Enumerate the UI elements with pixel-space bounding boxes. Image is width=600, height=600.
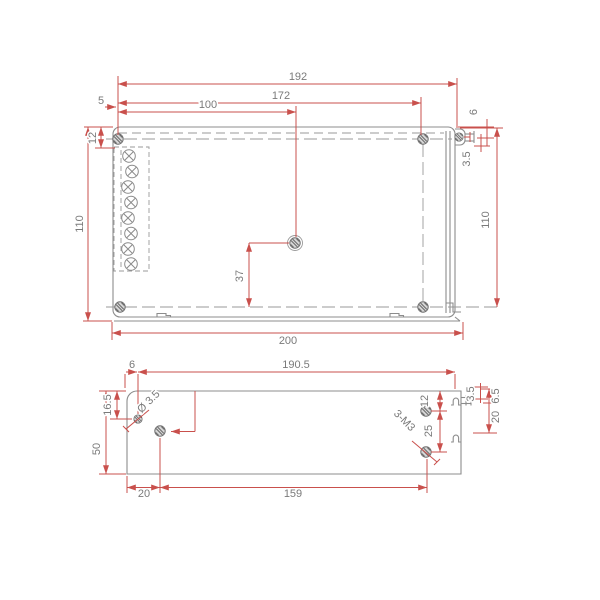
dim-110-right: 110 [480, 211, 492, 229]
dim-5: 5 [98, 95, 104, 107]
dim-50: 50 [91, 443, 103, 455]
dim-6-top: 6 [468, 109, 480, 115]
terminal-block [114, 147, 149, 271]
dim-172: 172 [272, 90, 290, 102]
dim-6-bottom: 6 [129, 359, 135, 371]
thread-callout: 3-M3 [391, 408, 417, 434]
dim-200: 200 [279, 335, 297, 347]
dim-6_5: 6.5 [490, 388, 502, 403]
bottom-view: 6 190.5 16.5 50 Ø 3.5 12 25 3-M3 3.5 6.5… [91, 359, 502, 500]
dim-190_5: 190.5 [282, 359, 310, 371]
technical-drawing: 192 172 100 5 12 110 37 200 110 6 3.5 [0, 0, 600, 600]
hole-diameter-label: Ø 3.5 [135, 388, 163, 416]
dim-192: 192 [289, 71, 307, 83]
dim-20-right: 20 [490, 411, 502, 423]
drawing-canvas: 192 172 100 5 12 110 37 200 110 6 3.5 [0, 0, 600, 600]
mounting-screws-top-view [113, 133, 463, 312]
dim-110-left: 110 [74, 215, 86, 233]
top-view-dimensions [83, 76, 503, 340]
top-view-chassis-outline [106, 127, 500, 321]
dim-12-top: 12 [87, 132, 99, 144]
top-view: 192 172 100 5 12 110 37 200 110 6 3.5 [74, 71, 503, 347]
dim-159: 159 [284, 488, 302, 500]
dim-37: 37 [234, 270, 246, 282]
dim-3_5-bottom: 3.5 [465, 386, 477, 401]
dim-12-bottom: 12 [419, 395, 431, 407]
dim-20-bottom: 20 [138, 488, 150, 500]
dim-16_5: 16.5 [102, 394, 114, 415]
dim-25: 25 [423, 425, 435, 437]
dim-100: 100 [199, 99, 217, 111]
dim-3_5-top: 3.5 [461, 151, 473, 166]
